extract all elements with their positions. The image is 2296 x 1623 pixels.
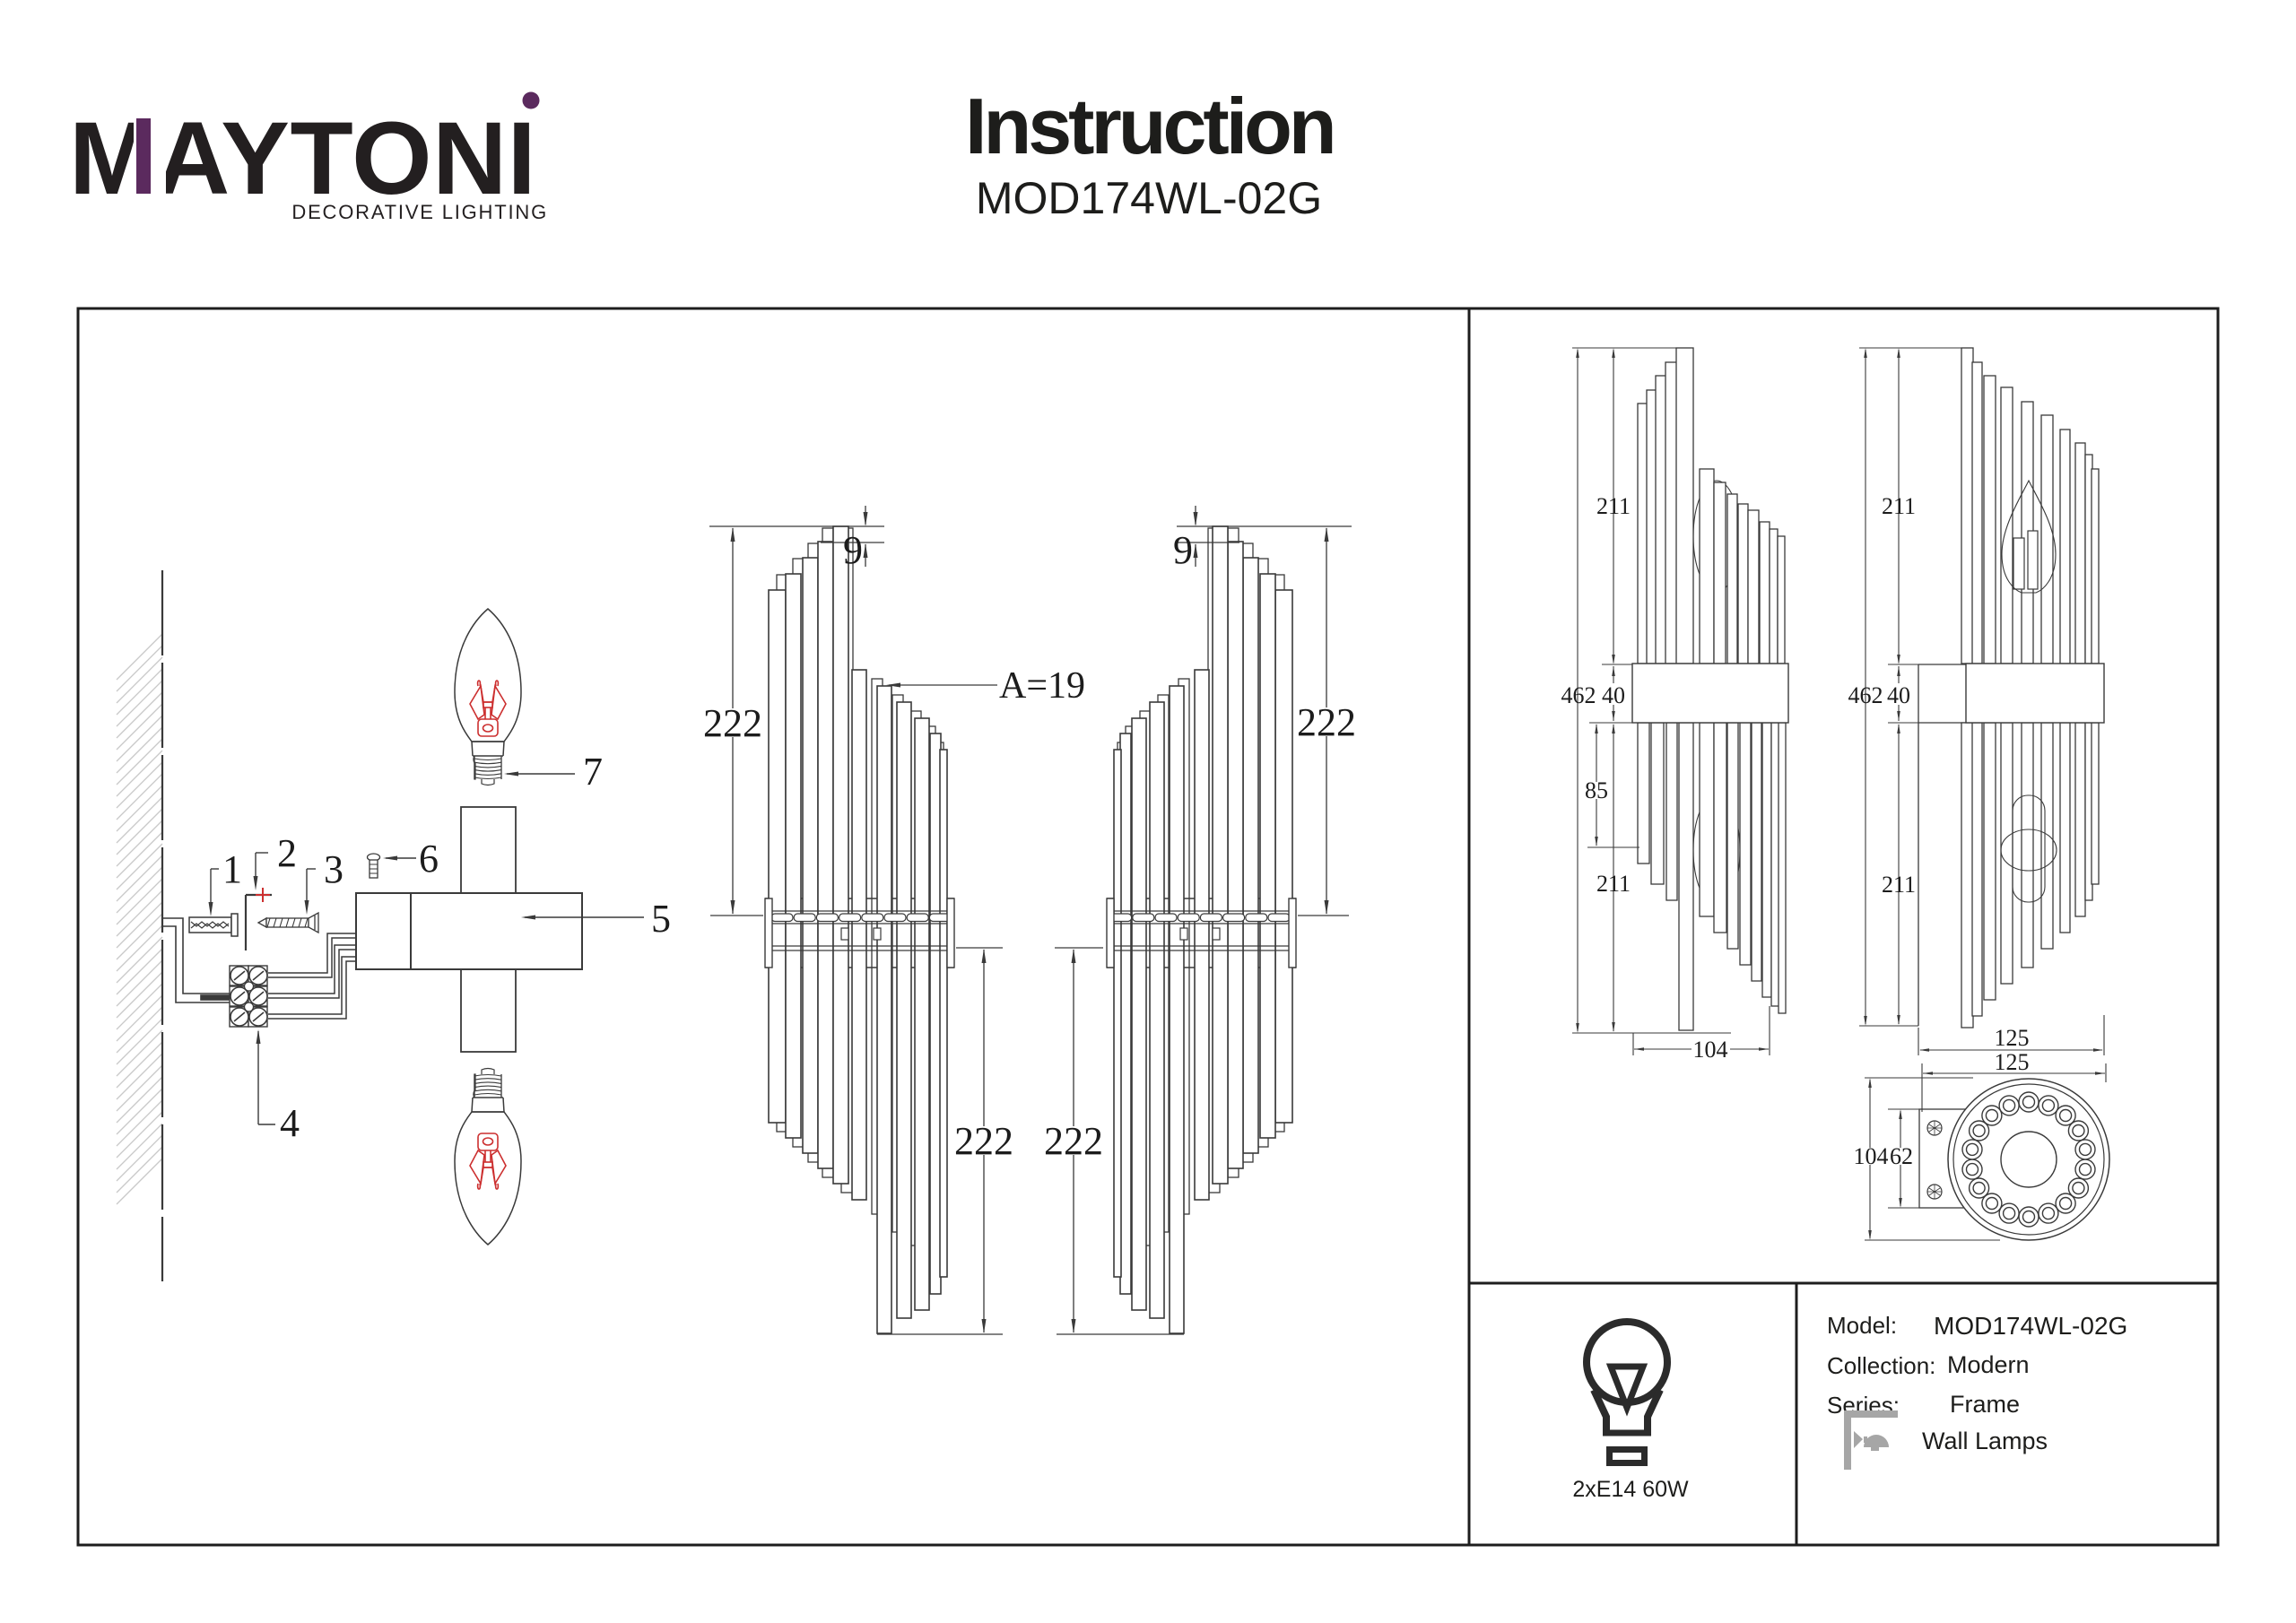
svg-text:211: 211 [1882, 493, 1916, 519]
svg-text:222: 222 [1044, 1119, 1103, 1163]
svg-text:2: 2 [277, 831, 297, 875]
svg-text:462: 462 [1561, 682, 1596, 708]
svg-text:104: 104 [1693, 1037, 1728, 1063]
svg-text:6: 6 [419, 837, 439, 881]
svg-text:40: 40 [1602, 682, 1625, 708]
svg-text:4: 4 [280, 1101, 300, 1145]
svg-text:222: 222 [703, 701, 762, 745]
svg-text:2xE14 60W: 2xE14 60W [1572, 1477, 1689, 1502]
svg-text:MOD174WL-02G: MOD174WL-02G [976, 173, 1322, 223]
svg-text:104: 104 [1854, 1143, 1889, 1169]
svg-text:Wall Lamps: Wall Lamps [1922, 1428, 2048, 1454]
svg-text:125: 125 [1995, 1049, 2030, 1075]
svg-text:MOD174WL-02G: MOD174WL-02G [1934, 1312, 2127, 1340]
svg-text:211: 211 [1596, 871, 1631, 897]
svg-text:Model:: Model: [1827, 1312, 1897, 1339]
svg-text:7: 7 [583, 750, 603, 794]
svg-text:1: 1 [222, 847, 242, 891]
svg-text:A=19: A=19 [999, 665, 1085, 707]
svg-text:9: 9 [843, 528, 863, 572]
svg-text:9: 9 [1173, 528, 1193, 572]
svg-text:462: 462 [1848, 682, 1883, 708]
svg-text:Frame: Frame [1950, 1391, 2020, 1418]
svg-text:40: 40 [1887, 682, 1910, 708]
svg-text:3: 3 [324, 847, 344, 891]
svg-text:211: 211 [1596, 493, 1631, 519]
svg-text:5: 5 [651, 897, 671, 941]
svg-text:Collection:: Collection: [1827, 1352, 1935, 1379]
svg-text:Modern: Modern [1947, 1351, 2030, 1378]
svg-text:DECORATIVE LIGHTING: DECORATIVE LIGHTING [291, 201, 548, 223]
svg-text:125: 125 [1995, 1025, 2030, 1051]
svg-text:Instruction: Instruction [965, 82, 1334, 170]
svg-text:211: 211 [1882, 872, 1916, 898]
svg-text:85: 85 [1585, 777, 1608, 803]
svg-text:222: 222 [1297, 700, 1356, 744]
svg-text:62: 62 [1890, 1143, 1913, 1169]
svg-text:222: 222 [954, 1119, 1013, 1163]
